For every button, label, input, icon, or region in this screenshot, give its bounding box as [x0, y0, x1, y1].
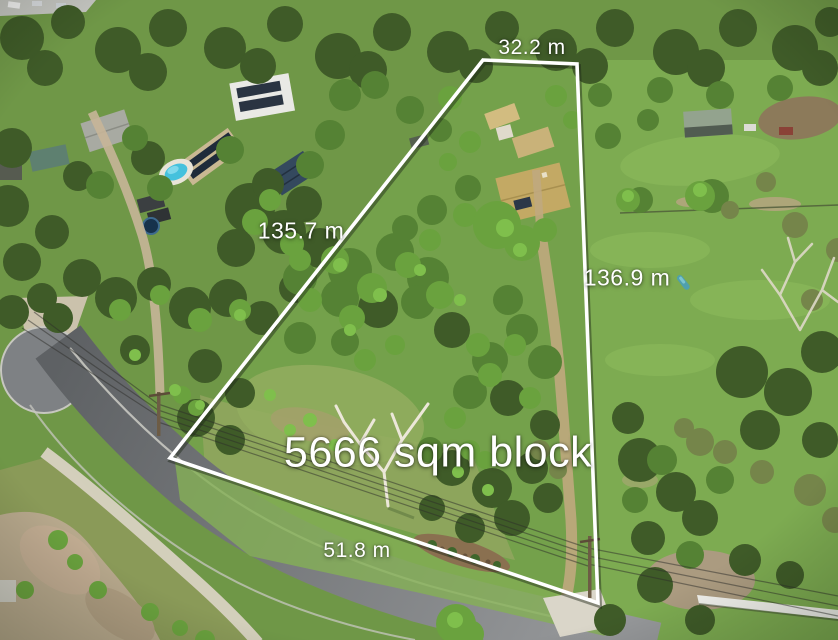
- measurement-right: 136.9 m: [584, 265, 671, 292]
- aerial-photo: 32.2 m 135.7 m 136.9 m 5666 sqm block 51…: [0, 0, 838, 640]
- measurement-top: 32.2 m: [498, 36, 565, 60]
- measurement-left: 135.7 m: [258, 218, 345, 245]
- measurement-frontage: 51.8 m: [323, 539, 390, 563]
- area-label: 5666 sqm block: [284, 429, 592, 478]
- aerial-scene: [0, 0, 838, 640]
